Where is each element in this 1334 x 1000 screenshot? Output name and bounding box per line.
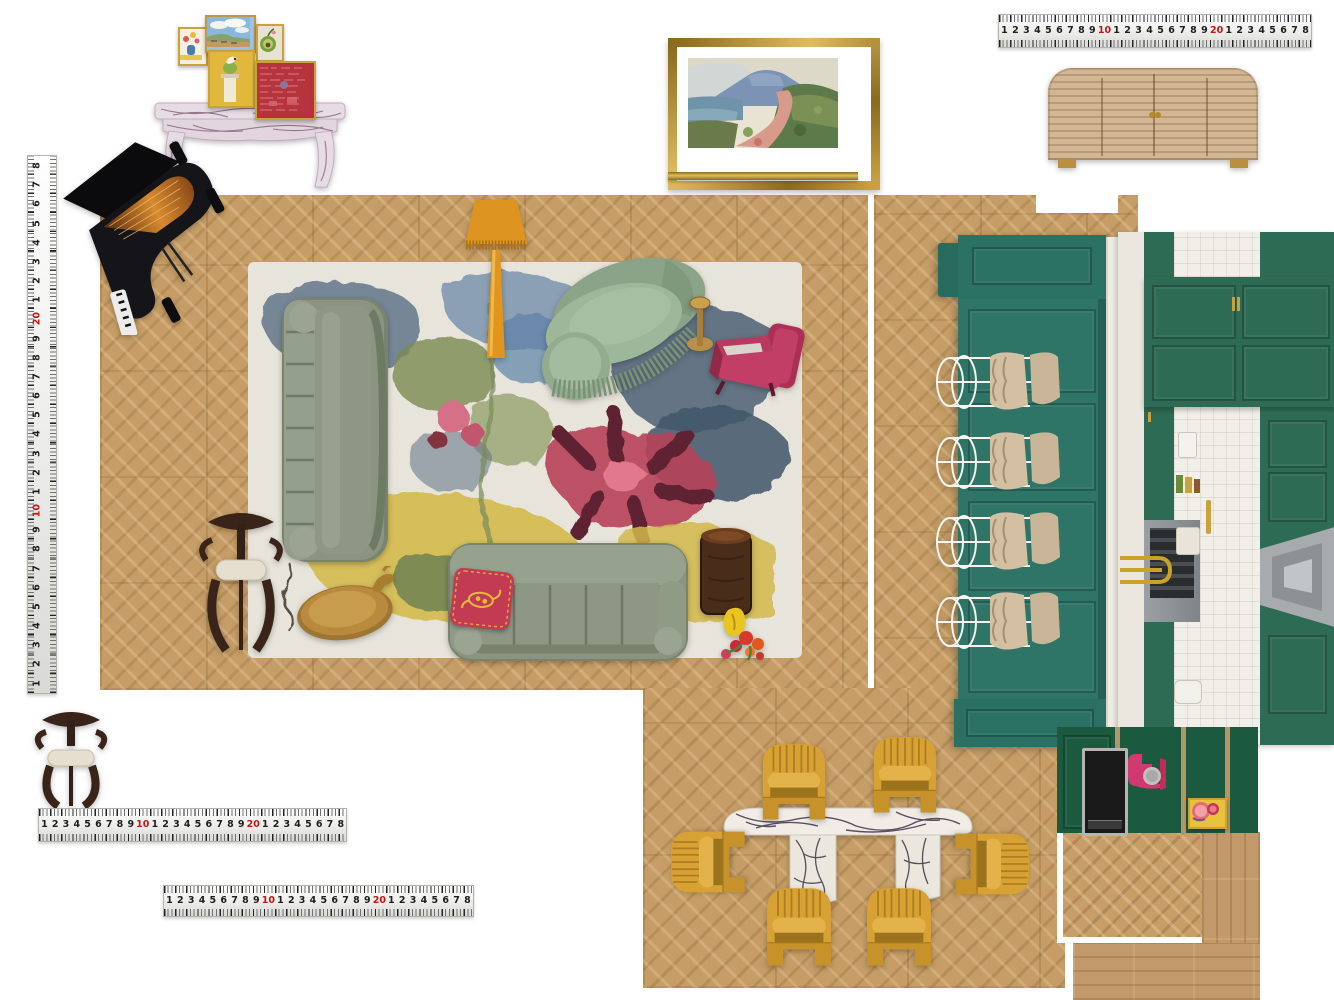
yellow-vase-with-flowers[interactable] <box>706 604 768 666</box>
photo-bottle <box>1176 475 1183 493</box>
ruler-number: 6 <box>1166 26 1177 36</box>
ruler-number: 10 <box>136 820 149 830</box>
lamp-stem <box>487 250 505 358</box>
ruler-number: 4 <box>32 234 51 250</box>
ruler-number: 3 <box>281 820 292 830</box>
ruler-numbers: 123456789101234567892012345678 <box>164 893 473 909</box>
chair-leg <box>84 766 96 806</box>
ruler-number: 3 <box>408 896 419 906</box>
ruler-number: 6 <box>218 896 229 906</box>
ruler-number: 20 <box>373 896 386 906</box>
herringbone-oak-swatch[interactable] <box>1057 826 1208 943</box>
ruler-number: 3 <box>1245 26 1256 36</box>
ruler-number: 5 <box>318 896 329 906</box>
ruler-number: 3 <box>32 253 51 269</box>
ruler-ticks <box>999 15 1311 22</box>
ruler-number: 4 <box>32 618 51 634</box>
moodboard-canvas: 123456789101234567892012345678 876543212… <box>0 0 1334 1000</box>
ruler-number: 3 <box>1133 26 1144 36</box>
chair-arm <box>38 732 46 748</box>
ruler-number: 2 <box>1010 26 1021 36</box>
photo-bottle <box>1185 477 1192 493</box>
ruler-number: 4 <box>1144 26 1155 36</box>
ruler-number: 10 <box>262 896 275 906</box>
oak-plank-swatch-horizontal[interactable] <box>1073 943 1260 1000</box>
lamp-shade <box>465 200 527 244</box>
ruler-number: 1 <box>149 820 160 830</box>
ruler-number: 2 <box>286 896 297 906</box>
embroidered-raspberry-pillow[interactable] <box>448 566 516 632</box>
ruler-number: 2 <box>1234 26 1245 36</box>
wood-gap <box>1181 727 1186 833</box>
ruler-number: 2 <box>175 896 186 906</box>
ruler-number: 7 <box>451 896 462 906</box>
ruler-number: 2 <box>50 820 61 830</box>
ruler-number: 9 <box>251 896 262 906</box>
ruler-ticks <box>39 809 346 816</box>
ruler-horizontal-bottom[interactable]: 123456789101234567892012345678 <box>163 885 474 917</box>
ruler-number: 5 <box>32 215 51 231</box>
ruler-number: 1 <box>164 896 175 906</box>
sofa-arm <box>289 527 319 557</box>
ruler-ticks <box>39 834 346 841</box>
ruler-number: 4 <box>32 426 51 442</box>
chair-leg <box>256 580 270 650</box>
ruler-number: 8 <box>351 896 362 906</box>
door-seam <box>1206 78 1208 156</box>
appliance-controls <box>1088 820 1122 829</box>
door-seam <box>1101 78 1103 156</box>
ruler-number: 8 <box>32 158 51 174</box>
photo-soap-dispenser <box>1178 432 1197 458</box>
ruler-number: 1 <box>39 820 50 830</box>
ruler-number: 1 <box>1111 26 1122 36</box>
ruler-number: 1 <box>275 896 286 906</box>
magenta-velvet-armchair[interactable] <box>708 318 808 410</box>
sofa-backrest <box>284 300 315 560</box>
sage-velvet-sofa-vertical[interactable] <box>280 296 390 564</box>
chair-arm <box>202 540 212 560</box>
cabinet-handle <box>1232 297 1235 311</box>
built-in-appliance[interactable] <box>1082 748 1128 836</box>
ruler-number: 20 <box>1210 26 1223 36</box>
ruler-number: 5 <box>1043 26 1054 36</box>
coastal-landscape-painting[interactable] <box>668 38 880 190</box>
ruler-number: 2 <box>271 820 282 830</box>
ruler-number: 8 <box>225 820 236 830</box>
art-red-abstract[interactable] <box>255 61 316 120</box>
ruler-number: 8 <box>115 820 126 830</box>
ruler-number: 9 <box>362 896 373 906</box>
floor-gap <box>1036 193 1118 213</box>
ruler-number: 7 <box>325 820 336 830</box>
green-kitchen-photo[interactable] <box>1118 232 1334 745</box>
chair-leg <box>46 766 58 806</box>
ruler-number: 9 <box>125 820 136 830</box>
ruler-numbers: 123456789101234567892012345678 <box>39 816 346 834</box>
ruler-number: 2 <box>160 820 171 830</box>
ruler-number: 8 <box>1300 26 1311 36</box>
sofa-arm <box>289 303 319 333</box>
photo-door-handle <box>1206 500 1211 534</box>
photo-toaster <box>1174 680 1202 704</box>
ruler-number: 1 <box>386 896 397 906</box>
carved-wood-armchair[interactable] <box>34 708 108 810</box>
ruler-number: 20 <box>32 311 51 327</box>
ruler-number: 8 <box>240 896 251 906</box>
ruler-number: 6 <box>329 896 340 906</box>
art-floral-still-life[interactable] <box>178 27 208 66</box>
art-content <box>257 63 310 114</box>
ruler-number: 6 <box>1278 26 1289 36</box>
ruler-number: 6 <box>314 820 325 830</box>
chair-arm <box>270 540 280 560</box>
ruler-number: 2 <box>32 464 51 480</box>
ruler-number: 10 <box>32 503 51 519</box>
ruler-number: 4 <box>182 820 193 830</box>
ruler-number: 1 <box>32 484 51 500</box>
green-kitchen-island[interactable] <box>938 235 1128 747</box>
ruler-number: 8 <box>1076 26 1087 36</box>
ruler-number: 7 <box>214 820 225 830</box>
scalloped-bar-stool[interactable] <box>934 587 1068 657</box>
scalloped-bar-stool[interactable] <box>934 347 1068 417</box>
ruler-horizontal-top[interactable]: 123456789101234567892012345678 <box>998 14 1312 48</box>
ruler-number: 3 <box>171 820 182 830</box>
sideboard-body <box>1048 68 1258 160</box>
painting-art <box>688 58 838 148</box>
ruler-number: 4 <box>308 896 319 906</box>
ruler-number: 7 <box>104 820 115 830</box>
photo-lower-right-cabinet <box>1260 627 1334 722</box>
ruler-number: 3 <box>32 637 51 653</box>
mustard-velvet-tub-chair[interactable] <box>667 821 747 903</box>
art-cloud-landscape[interactable] <box>205 15 256 53</box>
island-top-cap <box>958 235 1106 299</box>
gold-frame-side-profile[interactable] <box>668 172 858 180</box>
table-figure-base <box>370 573 396 593</box>
ruler-number: 5 <box>207 896 218 906</box>
ruler-number: 4 <box>1256 26 1267 36</box>
brass-foot <box>1058 159 1076 168</box>
ruler-number: 2 <box>397 896 408 906</box>
mustard-velvet-tub-chair[interactable] <box>755 740 833 822</box>
ruler-number: 7 <box>229 896 240 906</box>
brass-martini-side-table[interactable] <box>684 294 716 352</box>
ruler-number: 8 <box>462 896 473 906</box>
ruler-number: 9 <box>1087 26 1098 36</box>
ruler-number: 20 <box>247 820 260 830</box>
ruler-numbers: 123456789101234567892012345678 <box>999 22 1311 40</box>
art-content <box>207 17 250 47</box>
cane-slat-sideboard[interactable] <box>1048 68 1258 168</box>
ruler-number: 8 <box>335 820 346 830</box>
ruler-number: 4 <box>292 820 303 830</box>
ruler-ticks <box>164 909 473 916</box>
photo-brass-rail <box>1118 550 1182 592</box>
ruler-number: 1 <box>260 820 271 830</box>
ruler-number: 6 <box>32 196 51 212</box>
ruler-number: 3 <box>32 445 51 461</box>
chair-leg <box>212 580 226 650</box>
herringbone-texture <box>1063 832 1202 937</box>
chair-cushion <box>216 560 266 580</box>
ruler-number: 7 <box>32 177 51 193</box>
chair-arm <box>96 732 104 748</box>
art-content <box>210 52 249 102</box>
ruler-number: 8 <box>32 541 51 557</box>
ruler-number: 1 <box>32 675 51 691</box>
armchair-group <box>708 318 806 409</box>
ruler-number: 5 <box>1267 26 1278 36</box>
cabinet-handle <box>1237 297 1240 311</box>
ruler-number: 5 <box>82 820 93 830</box>
ruler-number: 5 <box>32 407 51 423</box>
ruler-number: 4 <box>1032 26 1043 36</box>
ruler-number: 5 <box>193 820 204 830</box>
ruler-number: 9 <box>1199 26 1210 36</box>
ruler-horizontal-middle[interactable]: 123456789101234567892012345678 <box>38 808 347 842</box>
chair-cushion <box>48 750 94 766</box>
fruit-art-tile[interactable] <box>1188 798 1227 829</box>
art-green-fruit-study[interactable] <box>256 24 284 62</box>
green-cabinet-fronts[interactable] <box>1057 727 1258 833</box>
ruler-number: 10 <box>1098 26 1111 36</box>
ruler-ticks <box>999 40 1311 47</box>
ruler-number: 3 <box>186 896 197 906</box>
photo-range-hood <box>1260 527 1334 627</box>
ruler-number: 2 <box>32 273 51 289</box>
art-bird-on-pedestal[interactable] <box>208 50 255 108</box>
brass-handle <box>1149 112 1155 118</box>
art-content <box>180 29 202 60</box>
ruler-numbers: 876543212098765432110987654321 <box>34 156 50 693</box>
scalloped-bar-stool[interactable] <box>934 427 1068 497</box>
ruler-number: 2 <box>1122 26 1133 36</box>
photo-tall-cabinet <box>1260 412 1334 527</box>
ruler-number: 3 <box>297 896 308 906</box>
art-content <box>1190 800 1221 823</box>
ruler-number: 7 <box>1177 26 1188 36</box>
ruler-number: 6 <box>440 896 451 906</box>
ruler-number: 1 <box>1223 26 1234 36</box>
ruler-number: 4 <box>419 896 430 906</box>
ruler-number: 5 <box>429 896 440 906</box>
ruler-number: 1 <box>32 292 51 308</box>
grand-piano[interactable] <box>60 140 250 335</box>
ruler-number: 6 <box>1054 26 1065 36</box>
ruler-number: 6 <box>203 820 214 830</box>
ruler-number: 7 <box>340 896 351 906</box>
ruler-number: 9 <box>236 820 247 830</box>
ruler-number: 9 <box>32 522 51 538</box>
ruler-number: 7 <box>1289 26 1300 36</box>
ruler-vertical-left[interactable]: 876543212098765432110987654321 <box>27 155 57 694</box>
fringed-floor-lamp[interactable] <box>461 196 531 364</box>
ruler-number: 4 <box>71 820 82 830</box>
ruler-number: 6 <box>32 388 51 404</box>
pink-stand-mixer[interactable] <box>1123 749 1171 799</box>
ruler-number: 7 <box>1065 26 1076 36</box>
ruler-number: 6 <box>93 820 104 830</box>
art-content <box>258 26 278 56</box>
ruler-number: 2 <box>32 656 51 672</box>
ruler-number: 6 <box>32 579 51 595</box>
ruler-number: 7 <box>32 560 51 576</box>
ruler-number: 4 <box>197 896 208 906</box>
ruler-number: 1 <box>999 26 1010 36</box>
ruler-number: 7 <box>32 368 51 384</box>
ruler-number: 3 <box>1021 26 1032 36</box>
ruler-number: 9 <box>32 330 51 346</box>
mustard-velvet-tub-chair[interactable] <box>860 884 938 968</box>
ruler-ticks <box>164 886 473 893</box>
carved-wood-accent-chair[interactable] <box>196 508 286 658</box>
piano-body-group <box>60 140 250 335</box>
photo-upper-cabinets <box>1144 277 1334 407</box>
brass-tray-coffee-table[interactable] <box>292 566 408 646</box>
photo-countertop <box>1118 232 1146 745</box>
mustard-velvet-tub-chair[interactable] <box>760 884 838 968</box>
mustard-velvet-tub-chair[interactable] <box>866 733 944 815</box>
ruler-number: 5 <box>32 599 51 615</box>
ruler-number: 3 <box>61 820 72 830</box>
brass-handle <box>1155 112 1161 118</box>
mustard-velvet-tub-chair[interactable] <box>953 823 1033 905</box>
ruler-number: 8 <box>1188 26 1199 36</box>
photo-canister <box>1176 527 1200 555</box>
brass-foot <box>1230 159 1248 168</box>
photo-bottle <box>1194 479 1200 493</box>
ruler-number: 5 <box>303 820 314 830</box>
ruler-number: 5 <box>1155 26 1166 36</box>
scalloped-bar-stool[interactable] <box>934 507 1068 577</box>
ruler-number: 8 <box>32 349 51 365</box>
